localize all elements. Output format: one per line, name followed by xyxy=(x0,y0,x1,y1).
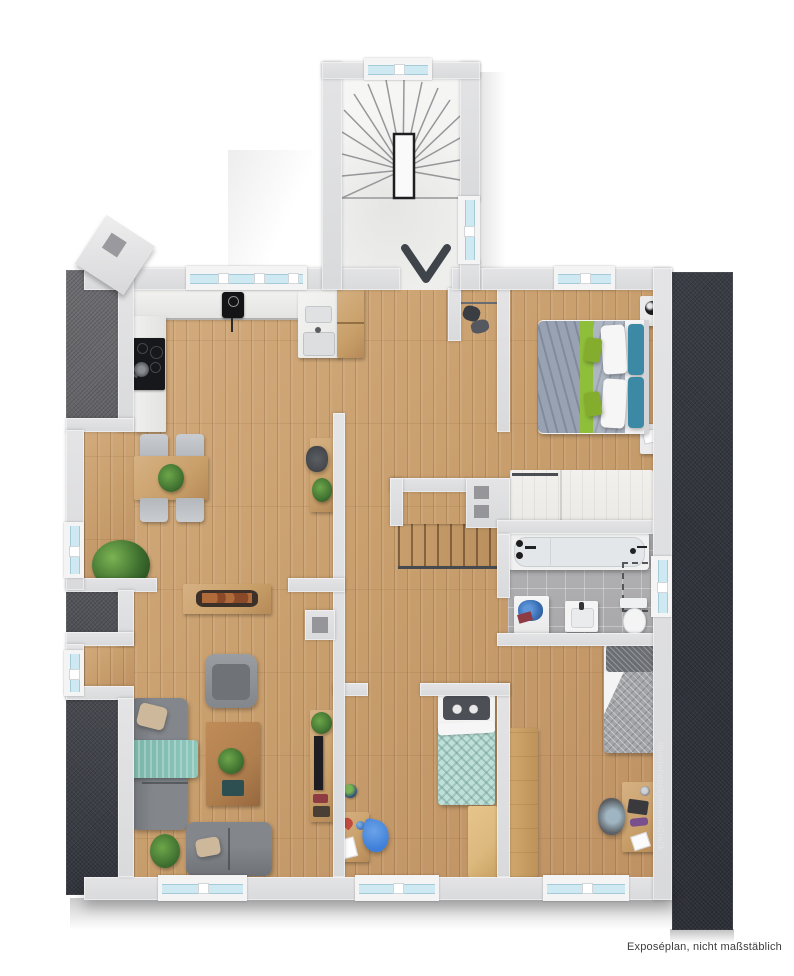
window-mullion xyxy=(69,669,80,680)
wall-bedroom-right-west xyxy=(497,683,510,877)
dining-chair-4 xyxy=(176,498,204,522)
built-in-closet xyxy=(510,470,653,522)
tub-drain xyxy=(630,548,636,554)
window-stairwell-right xyxy=(458,196,480,264)
winder-staircase xyxy=(342,80,462,210)
wall-bedroom-north xyxy=(497,633,655,646)
sofa-cushion-line-2 xyxy=(142,782,188,784)
toilet-bowl xyxy=(623,608,646,634)
coat-rail xyxy=(461,302,497,304)
tub-spout xyxy=(525,546,536,549)
floor-plan: IllustrationsElementeGrafik Exposéplan, … xyxy=(0,0,794,976)
tv-flatscreen xyxy=(314,736,323,790)
window-bedroom-bottom xyxy=(543,875,629,901)
window-living-left-upper xyxy=(64,522,84,578)
roof-slope-right xyxy=(672,272,733,930)
wall-living-divider-right xyxy=(288,578,345,592)
pillow-teal-2 xyxy=(628,377,644,428)
wall-bath-west xyxy=(497,534,510,598)
window-kitchen-top xyxy=(186,266,307,290)
window-mullion xyxy=(464,226,475,237)
tall-cabinet-shelf-line xyxy=(337,322,364,324)
tub-tap-2 xyxy=(516,552,523,559)
wall-device-cord xyxy=(231,318,233,332)
pillow-white-2 xyxy=(600,378,627,429)
kids-duvet-mint xyxy=(438,728,495,805)
sink-faucet xyxy=(315,327,321,333)
stairwell-shadow-left xyxy=(228,150,328,268)
wall-kids-north-2 xyxy=(420,683,510,696)
washbasin-bowl xyxy=(571,608,594,628)
dining-chair-3 xyxy=(140,498,168,522)
wall-device-dial xyxy=(228,296,239,307)
bed-duvet-gray xyxy=(538,321,584,433)
wall-bedroom-west xyxy=(497,288,510,432)
bed-headboard xyxy=(644,320,649,434)
bedroom-wardrobe xyxy=(508,728,538,877)
bathtub-step-line xyxy=(550,537,551,565)
wall-hall-stub xyxy=(390,478,403,526)
wall-left-5 xyxy=(118,698,134,877)
console-plant xyxy=(312,478,332,502)
window-living-bottom xyxy=(158,875,247,901)
coffee-table-plant xyxy=(218,748,244,774)
gray-bed-pillow xyxy=(606,645,655,672)
gray-bed-fold xyxy=(604,672,626,718)
basin-faucet xyxy=(579,602,584,610)
niche-square-2 xyxy=(474,505,489,518)
window-stairwell-top xyxy=(364,58,432,80)
coffee-table-box xyxy=(222,780,244,796)
tub-tap-1 xyxy=(516,540,523,547)
building-shadow xyxy=(70,898,690,930)
window-living-left-lower xyxy=(64,650,84,696)
caption-text: Exposéplan, nicht maßstäblich xyxy=(627,941,782,953)
burner-1 xyxy=(137,343,148,354)
stairwell-wall-left xyxy=(322,62,342,290)
window-mullion xyxy=(218,273,229,284)
tub-handle xyxy=(637,546,647,548)
desk-chair-hall xyxy=(306,446,328,472)
tv-board-dark-item xyxy=(313,806,330,817)
laptop xyxy=(627,799,649,816)
penguin-pillow xyxy=(443,696,490,720)
window-mullion xyxy=(582,883,593,894)
window-kids-bottom xyxy=(355,875,439,901)
burner-2 xyxy=(150,346,163,359)
tv-board-plant xyxy=(311,712,332,734)
chimney-column-flue xyxy=(312,617,328,633)
watermark: IllustrationsElementeGrafik xyxy=(656,742,665,882)
office-chair xyxy=(598,798,625,835)
toy-globe xyxy=(343,784,357,798)
window-mullion xyxy=(394,64,405,75)
closet-divider xyxy=(560,470,562,522)
pillow-white-1 xyxy=(600,324,627,375)
stairwell-wall-right-lower xyxy=(460,260,480,290)
table-centerpiece-plant xyxy=(158,464,184,492)
notch-floor-lower xyxy=(84,646,134,686)
window-glass xyxy=(190,274,303,284)
dining-chair-2 xyxy=(176,434,204,458)
teal-throw-blanket xyxy=(126,740,198,778)
window-mullion xyxy=(580,273,591,284)
living-floor-plant xyxy=(150,834,180,868)
wall-mid-vertical xyxy=(333,413,345,877)
wall-closet-bath xyxy=(497,520,653,534)
wall-coat-niche xyxy=(448,288,461,341)
chimney-flue xyxy=(102,233,127,258)
closet-rail xyxy=(512,473,558,476)
cushion-green-2 xyxy=(583,391,602,417)
window-mullion xyxy=(198,883,209,894)
window-mullion xyxy=(254,273,265,284)
kitchen-sink xyxy=(303,332,335,356)
cushion-green-1 xyxy=(583,337,602,363)
decor-balls xyxy=(202,593,252,603)
toilet-tank xyxy=(620,598,647,608)
window-mullion xyxy=(393,883,404,894)
tv-board-red-item xyxy=(313,794,328,803)
window-mullion xyxy=(288,273,299,284)
internal-staircase xyxy=(398,524,498,569)
armchair-seat xyxy=(212,664,250,700)
dining-chair-1 xyxy=(140,434,168,458)
burner-3 xyxy=(150,362,161,373)
desk-mug xyxy=(640,786,650,796)
niche-square-1 xyxy=(474,486,489,499)
dish-rack xyxy=(305,306,332,323)
stairwell-shadow xyxy=(480,72,506,287)
window-mullion xyxy=(657,582,668,593)
window-mullion xyxy=(69,546,80,557)
pillow-teal-1 xyxy=(628,324,644,375)
stair-direction-arrow xyxy=(400,242,452,286)
window-master-top xyxy=(554,266,615,290)
stairwell-wall-right-upper xyxy=(460,62,480,202)
two-seat-cushion-line xyxy=(228,828,230,870)
kids-dresser xyxy=(468,806,497,877)
window-bathroom-right xyxy=(651,556,672,617)
